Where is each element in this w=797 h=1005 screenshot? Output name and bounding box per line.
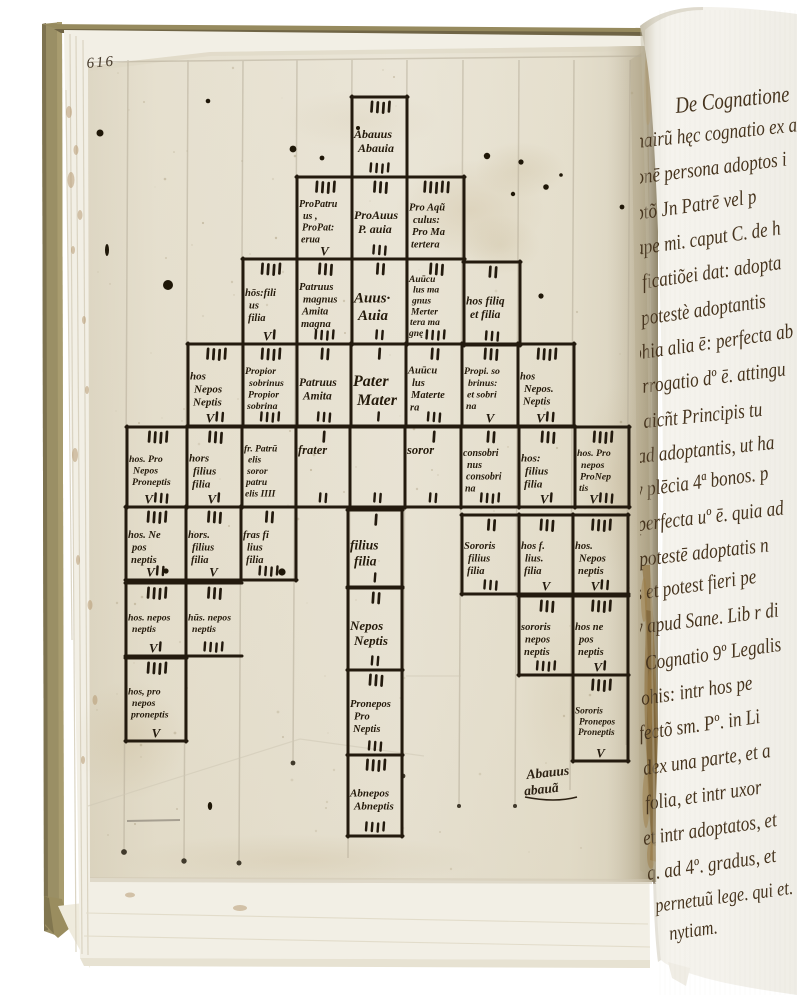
- svg-text:hos f.: hos f.: [521, 541, 545, 552]
- svg-text:et filia: et filia: [470, 309, 501, 321]
- svg-text:filius: filius: [193, 465, 216, 477]
- svg-text:Pro: Pro: [354, 712, 370, 723]
- svg-text:Mater: Mater: [356, 392, 398, 409]
- svg-text:gnus: gnus: [411, 297, 431, 307]
- svg-text:V: V: [596, 746, 606, 761]
- svg-text:Neptis: Neptis: [192, 396, 222, 408]
- svg-text:consobri: consobri: [463, 448, 499, 459]
- svg-text:neptis: neptis: [132, 624, 156, 635]
- svg-text:us ,: us ,: [303, 211, 317, 222]
- svg-text:Nepos: Nepos: [578, 554, 606, 565]
- svg-text:V: V: [144, 492, 154, 507]
- svg-text:Sororis: Sororis: [575, 706, 603, 716]
- svg-text:na: na: [466, 401, 476, 412]
- svg-text:culus:: culus:: [413, 215, 440, 226]
- svg-text:brinus:: brinus:: [468, 378, 497, 389]
- svg-text:Propior: Propior: [248, 389, 279, 400]
- svg-text:hos. Pro: hos. Pro: [577, 448, 611, 459]
- svg-text:nepos: nepos: [132, 698, 156, 709]
- svg-text:ProNep: ProNep: [580, 471, 611, 482]
- svg-text:V: V: [146, 565, 156, 580]
- svg-text:V: V: [591, 579, 601, 594]
- svg-text:pos: pos: [578, 635, 594, 646]
- svg-text:filius: filius: [192, 543, 214, 554]
- svg-text:us: us: [249, 301, 259, 312]
- svg-text:Propior: Propior: [245, 366, 276, 377]
- svg-text:Patruus: Patruus: [299, 282, 333, 293]
- svg-text:Auia: Auia: [357, 308, 389, 324]
- svg-text:V: V: [536, 411, 546, 426]
- svg-text:nus: nus: [467, 460, 482, 471]
- svg-text:Merter: Merter: [410, 307, 438, 317]
- svg-text:sobrinus: sobrinus: [248, 378, 284, 389]
- svg-text:Pronepos: Pronepos: [579, 717, 616, 727]
- svg-text:Nepos: Nepos: [132, 466, 158, 477]
- svg-text:tera ma: tera ma: [410, 318, 440, 328]
- svg-text:sororis: sororis: [520, 622, 551, 633]
- svg-text:Pro Aqũ: Pro Aqũ: [409, 202, 445, 213]
- svg-text:Neptis: Neptis: [353, 633, 388, 648]
- svg-text:Propi. so: Propi. so: [464, 366, 500, 377]
- svg-text:Proneptis: Proneptis: [132, 477, 171, 488]
- svg-text:na: na: [465, 483, 476, 494]
- svg-text:Amita: Amita: [302, 390, 332, 402]
- svg-text:ra: ra: [410, 403, 419, 414]
- svg-text:tertera: tertera: [411, 240, 440, 251]
- svg-text:elis IIII: elis IIII: [245, 489, 276, 499]
- svg-text:Neptis: Neptis: [522, 396, 550, 407]
- svg-text:V: V: [263, 329, 273, 344]
- svg-text:nepos: nepos: [525, 635, 550, 646]
- svg-text:Pronepos: Pronepos: [350, 699, 391, 710]
- svg-text:Pro Ma: Pro Ma: [412, 227, 445, 238]
- svg-text:filius: filius: [525, 465, 548, 477]
- svg-text:ProPat:: ProPat:: [302, 223, 334, 234]
- svg-text:soror: soror: [246, 467, 268, 477]
- svg-text:hos. Ne: hos. Ne: [128, 530, 161, 541]
- svg-text:lus: lus: [412, 378, 425, 389]
- svg-text:lius: lius: [247, 543, 263, 554]
- svg-text:ProPatru: ProPatru: [299, 199, 338, 210]
- svg-text:hos: hos: [520, 372, 535, 383]
- svg-text:hos. Pro: hos. Pro: [129, 454, 163, 465]
- svg-text:frater: frater: [298, 443, 327, 457]
- svg-text:lius.: lius.: [525, 554, 543, 565]
- svg-text:V: V: [486, 411, 496, 426]
- svg-text:filia: filia: [524, 478, 543, 490]
- svg-text:Sororis: Sororis: [464, 541, 496, 552]
- svg-text:filius: filius: [468, 554, 490, 565]
- svg-text:V: V: [152, 726, 162, 741]
- svg-text:V: V: [589, 492, 599, 507]
- svg-text:V: V: [149, 641, 159, 656]
- svg-text:hors: hors: [189, 452, 209, 464]
- svg-text:filius: filius: [350, 537, 379, 552]
- svg-text:filia: filia: [192, 478, 211, 490]
- svg-text:Auūcu: Auūcu: [407, 365, 437, 376]
- svg-text:neptis: neptis: [578, 647, 604, 658]
- svg-text:Abneptis: Abneptis: [353, 800, 394, 812]
- svg-text:Abnepos: Abnepos: [349, 787, 389, 799]
- svg-text:patru: patru: [245, 478, 267, 488]
- svg-text:soror: soror: [406, 443, 434, 457]
- svg-text:hūs. nepos: hūs. nepos: [188, 612, 231, 623]
- svg-text:hos ne: hos ne: [575, 622, 604, 633]
- svg-text:hos.: hos.: [575, 541, 593, 552]
- svg-text:Nepos: Nepos: [349, 618, 383, 633]
- svg-text:consobri: consobri: [466, 472, 502, 483]
- svg-text:fr. Patrū: fr. Patrū: [244, 445, 277, 455]
- svg-text:magnus: magnus: [303, 294, 337, 305]
- svg-text:Amita: Amita: [301, 307, 328, 318]
- svg-text:Abauia: Abauia: [357, 141, 394, 155]
- svg-text:hos: hos: [190, 370, 206, 382]
- svg-text:hos:: hos:: [521, 452, 541, 464]
- svg-text:filia: filia: [524, 566, 542, 577]
- svg-text:proneptis: proneptis: [130, 710, 169, 721]
- svg-text:gnę: gnę: [408, 329, 424, 339]
- svg-text:filia: filia: [246, 555, 264, 566]
- svg-text:Auus·: Auus·: [353, 290, 391, 306]
- svg-text:Nepos: Nepos: [193, 383, 222, 395]
- svg-text:hos filiq: hos filiq: [466, 295, 505, 307]
- svg-text:lus ma: lus ma: [413, 286, 439, 296]
- svg-text:fras fi: fras fi: [243, 530, 269, 541]
- svg-text:hos. nepos: hos. nepos: [128, 612, 171, 623]
- svg-text:V: V: [207, 492, 217, 507]
- svg-text:Nepos.: Nepos.: [523, 384, 553, 395]
- svg-text:Proneptis: Proneptis: [578, 728, 615, 738]
- svg-text:hos, pro: hos, pro: [128, 687, 161, 698]
- svg-text:erua: erua: [301, 234, 320, 245]
- svg-text:P. auia: P. auia: [358, 222, 392, 236]
- svg-text:Auūcu: Auūcu: [408, 275, 435, 285]
- svg-text:V: V: [540, 492, 550, 507]
- svg-text:pos: pos: [131, 543, 147, 554]
- svg-text:hōs:fili: hōs:fili: [245, 288, 276, 299]
- svg-text:Abauus: Abauus: [353, 127, 392, 141]
- svg-text:ProAuus: ProAuus: [354, 208, 398, 222]
- svg-text:V: V: [542, 579, 552, 594]
- svg-text:Materte: Materte: [410, 390, 445, 401]
- svg-text:et sobri: et sobri: [467, 389, 497, 400]
- svg-text:hors.: hors.: [188, 530, 210, 541]
- svg-text:neptis: neptis: [524, 647, 550, 658]
- svg-text:filia: filia: [248, 313, 266, 324]
- svg-text:616: 616: [86, 54, 116, 72]
- svg-text:sobrina: sobrina: [246, 401, 278, 412]
- svg-text:neptis: neptis: [192, 624, 216, 635]
- svg-text:neptis: neptis: [578, 566, 604, 577]
- svg-text:V: V: [209, 565, 219, 580]
- svg-text:tis: tis: [579, 483, 588, 494]
- svg-text:magna: magna: [301, 319, 331, 330]
- svg-text:elis: elis: [248, 456, 261, 466]
- svg-text:Pater: Pater: [352, 373, 389, 390]
- svg-text:nepos: nepos: [581, 460, 605, 471]
- svg-text:V: V: [206, 411, 216, 426]
- svg-text:filia: filia: [191, 555, 209, 566]
- svg-text:V: V: [593, 660, 603, 675]
- svg-text:filia: filia: [467, 566, 485, 577]
- svg-text:V: V: [320, 244, 330, 259]
- svg-text:Neptis: Neptis: [352, 724, 380, 735]
- svg-text:Patruus: Patruus: [299, 377, 337, 389]
- svg-text:filia: filia: [354, 553, 377, 568]
